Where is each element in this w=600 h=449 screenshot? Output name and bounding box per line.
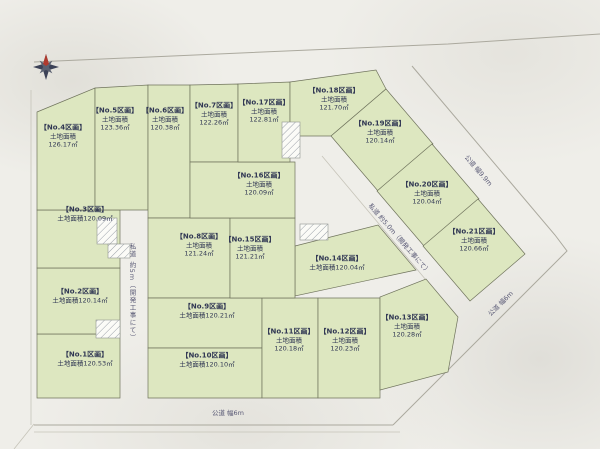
plot-number: 【No.1区画】 [57,351,112,360]
plot-area: 120.38㎡ [142,123,188,131]
plot-number: 【No.7区画】 [191,102,237,111]
plot-label-18: 【No.18区画】土地面積121.70㎡ [308,87,359,112]
plot-label-11: 【No.11区画】土地面積120.18㎡ [263,328,314,353]
plot-area: 121.24㎡ [176,249,222,257]
plot-number: 【No.6区画】 [142,107,188,116]
plot-label-7: 【No.7区画】土地面積122.26㎡ [191,102,237,127]
site-plan-map: 私道 約5m（開発工事にて） 私道 約5.0m（開発工事にて） 公道 幅9.9m… [0,0,600,449]
plot-area: 120.18㎡ [263,344,314,352]
plot-area-label: 土地面積 [263,336,314,344]
plot-number: 【No.10区画】 [179,352,234,361]
plot-area: 120.14㎡ [354,136,405,144]
public-road-bottom-label: 公道 幅6m [212,407,244,417]
plot-area-label: 土地面積 [448,236,499,244]
plot-area: 122.26㎡ [191,118,237,126]
plot-label-6: 【No.6区画】土地面積120.38㎡ [142,107,188,132]
plot-number: 【No.11区画】 [263,328,314,337]
plot-area-label: 土地面積 [319,336,370,344]
plot-number: 【No.3区画】 [57,206,112,215]
plot-area: 123.36㎡ [92,123,138,131]
plot-number: 【No.15区画】 [224,236,275,245]
plot-area: 120.04㎡ [401,197,452,205]
plot-area: 120.09㎡ [233,188,284,196]
plot-area-label: 土地面積 [238,107,289,115]
plot-area: 120.66㎡ [448,244,499,252]
plot-area-label: 土地面積 [308,95,359,103]
plot-area: 122.81㎡ [238,115,289,123]
plot-area: 土地面積120.14㎡ [52,296,107,304]
plot-label-16: 【No.16区画】土地面積120.09㎡ [233,172,284,197]
plot-number: 【No.13区画】 [381,314,432,323]
plot-area-label: 土地面積 [233,180,284,188]
plot-label-17: 【No.17区画】土地面積122.81㎡ [238,99,289,124]
plot-number: 【No.21区画】 [448,228,499,237]
plot-area: 土地面積120.53㎡ [57,359,112,367]
plot-label-9: 【No.9区画】土地面積120.21㎡ [179,303,234,320]
plot-label-4: 【No.4区画】土地面積126.17㎡ [40,124,86,149]
plot-label-15: 【No.15区画】土地面積121.21㎡ [224,236,275,261]
plot-label-2: 【No.2区画】土地面積120.14㎡ [52,288,107,305]
plot-area: 120.23㎡ [319,344,370,352]
plot-number: 【No.2区画】 [52,288,107,297]
plot-area-label: 土地面積 [401,189,452,197]
plot-number: 【No.14区画】 [309,255,364,264]
plot-number: 【No.5区画】 [92,107,138,116]
plot-area-label: 土地面積 [142,115,188,123]
plot-area-label: 土地面積 [224,244,275,252]
public-road-southeast-label: 公道 幅6m [485,288,515,318]
plot-area: 土地面積120.09㎡ [57,214,112,222]
plot-number: 【No.18区画】 [308,87,359,96]
plot-label-8: 【No.8区画】土地面積121.24㎡ [176,233,222,258]
plot-area-label: 土地面積 [354,128,405,136]
plot-number: 【No.12区画】 [319,328,370,337]
plot-label-13: 【No.13区画】土地面積120.28㎡ [381,314,432,339]
plot-area: 121.21㎡ [224,252,275,260]
plot-area: 土地面積120.04㎡ [309,263,364,271]
label-layer: 私道 約5m（開発工事にて） 私道 約5.0m（開発工事にて） 公道 幅9.9m… [0,0,600,449]
plot-label-20: 【No.20区画】土地面積120.04㎡ [401,181,452,206]
plot-area-label: 土地面積 [92,115,138,123]
plot-label-12: 【No.12区画】土地面積120.23㎡ [319,328,370,353]
private-road-diagonal-label: 私道 約5.0m（開発工事にて） [367,201,434,276]
plot-area: 126.17㎡ [40,140,86,148]
plot-label-19: 【No.19区画】土地面積120.14㎡ [354,120,405,145]
plot-number: 【No.4区画】 [40,124,86,133]
plot-label-5: 【No.5区画】土地面積123.36㎡ [92,107,138,132]
plot-label-3: 【No.3区画】土地面積120.09㎡ [57,206,112,223]
plot-area: 土地面積120.21㎡ [179,311,234,319]
plot-label-10: 【No.10区画】土地面積120.10㎡ [179,352,234,369]
plot-number: 【No.9区画】 [179,303,234,312]
plot-area-label: 土地面積 [191,110,237,118]
plot-number: 【No.19区画】 [354,120,405,129]
plot-area: 121.70㎡ [308,103,359,111]
plot-area: 土地面積120.10㎡ [179,360,234,368]
plot-area-label: 土地面積 [176,241,222,249]
plot-number: 【No.16区画】 [233,172,284,181]
plot-area: 120.28㎡ [381,330,432,338]
plot-area-label: 土地面積 [40,132,86,140]
plot-number: 【No.8区画】 [176,233,222,242]
private-road-vertical-label: 私道 約5m（開発工事にて） [127,243,137,383]
plot-label-1: 【No.1区画】土地面積120.53㎡ [57,351,112,368]
public-road-top-label: 公道 幅9.9m [463,152,496,187]
plot-number: 【No.17区画】 [238,99,289,108]
plot-area-label: 土地面積 [381,322,432,330]
plot-number: 【No.20区画】 [401,181,452,190]
plot-label-14: 【No.14区画】土地面積120.04㎡ [309,255,364,272]
plot-label-21: 【No.21区画】土地面積120.66㎡ [448,228,499,253]
